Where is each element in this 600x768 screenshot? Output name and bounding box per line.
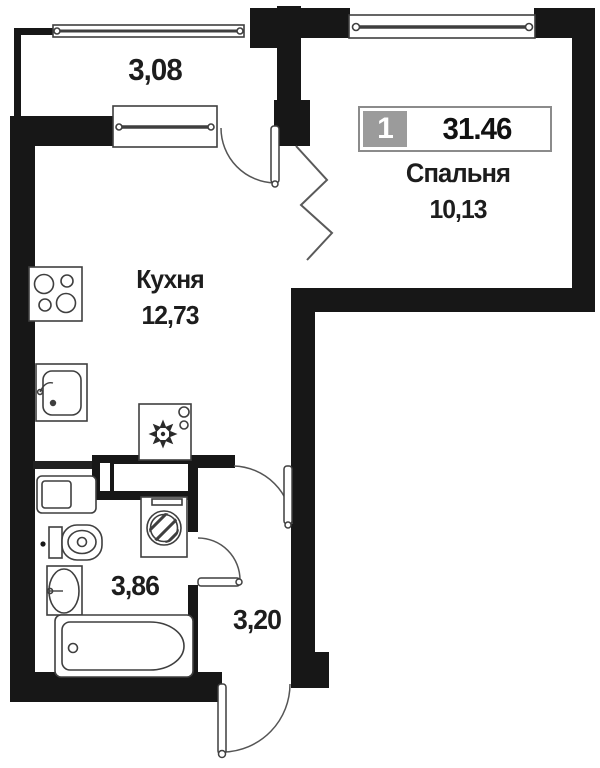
hallway-area-label: 3,20 xyxy=(210,604,305,636)
kitchen-area-label: 12,73 xyxy=(108,300,232,331)
window-icon-kitchen-balcony xyxy=(113,106,217,147)
vanity-icon xyxy=(37,476,96,513)
stove-icon xyxy=(29,267,82,321)
washbasin-icon xyxy=(47,566,82,615)
wall-balcony-top-stub xyxy=(14,28,57,35)
washing-machine-icon xyxy=(141,497,188,557)
wall-west-exterior xyxy=(10,116,35,702)
wall-break-zigzag-icon xyxy=(296,146,332,260)
unit-info-badge: 1 31.46 xyxy=(358,106,552,152)
toilet-icon xyxy=(40,525,102,560)
wall-bathroom-top-thin xyxy=(33,461,93,469)
kitchen-name-label: Кухня xyxy=(108,264,232,295)
total-area-value: 31.46 xyxy=(411,111,544,147)
door-arc-icon-kitchen-hall xyxy=(234,466,292,528)
bathroom-area-label: 3,86 xyxy=(88,570,183,602)
bedroom-name-label: Спальня xyxy=(382,158,534,189)
door-arc-icon-entrance xyxy=(218,684,290,758)
fridge-icon xyxy=(139,404,191,460)
wall-bathroom-east-upper xyxy=(188,455,198,532)
wall-bedroom-east xyxy=(572,8,595,312)
snowflake-icon xyxy=(149,420,178,449)
wall-bedroom-top-left xyxy=(295,8,350,38)
door-arc-icon-balcony xyxy=(221,126,279,187)
wall-bedroom-bottom xyxy=(291,288,595,312)
duct-cell-large xyxy=(114,464,188,491)
balcony-area-label: 3,08 xyxy=(98,52,212,88)
floor-plan: 3,08 1 31.46 Спальня 10,13 Кухня 12,73 3… xyxy=(0,0,600,768)
duct-cell-small xyxy=(100,463,110,491)
bathtub-icon xyxy=(55,615,193,677)
kitchen-sink-icon xyxy=(36,364,87,421)
wall-balcony-left xyxy=(14,28,21,120)
unit-number-badge: 1 xyxy=(363,111,407,147)
bedroom-area-label: 10,13 xyxy=(382,194,534,225)
door-arc-icon-bathroom xyxy=(198,538,242,586)
wall-south-east-block xyxy=(291,652,329,688)
wall-hall-top xyxy=(197,455,235,468)
window-icon-bedroom xyxy=(349,15,535,38)
window-icon-balcony xyxy=(53,25,244,37)
